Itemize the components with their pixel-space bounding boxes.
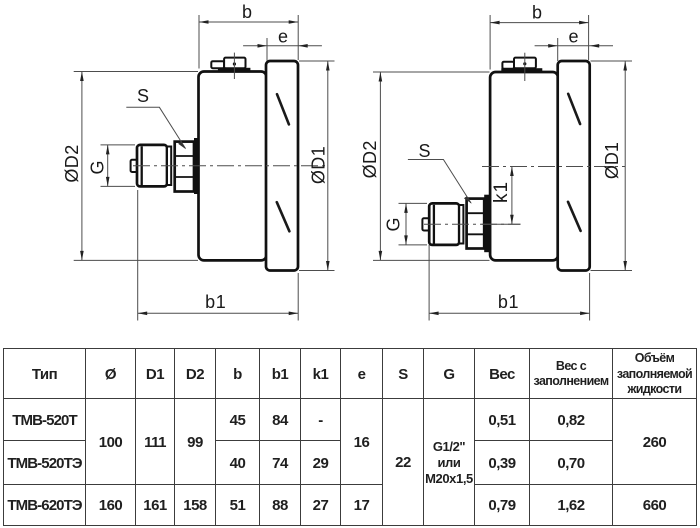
svg-text:ØD2: ØD2 (62, 144, 82, 182)
svg-text:b: b (532, 3, 542, 23)
svg-text:G: G (87, 160, 107, 174)
svg-text:b1: b1 (498, 292, 519, 312)
svg-text:S: S (137, 86, 149, 106)
svg-text:G: G (383, 217, 403, 231)
svg-text:ØD2: ØD2 (360, 140, 380, 178)
svg-text:k1: k1 (491, 181, 512, 203)
svg-text:S: S (418, 141, 430, 161)
svg-text:e: e (568, 27, 578, 47)
svg-text:ØD1: ØD1 (309, 146, 329, 184)
svg-text:b1: b1 (205, 292, 226, 312)
svg-text:ØD1: ØD1 (602, 142, 622, 179)
svg-text:e: e (278, 27, 288, 47)
svg-text:b: b (242, 2, 252, 22)
